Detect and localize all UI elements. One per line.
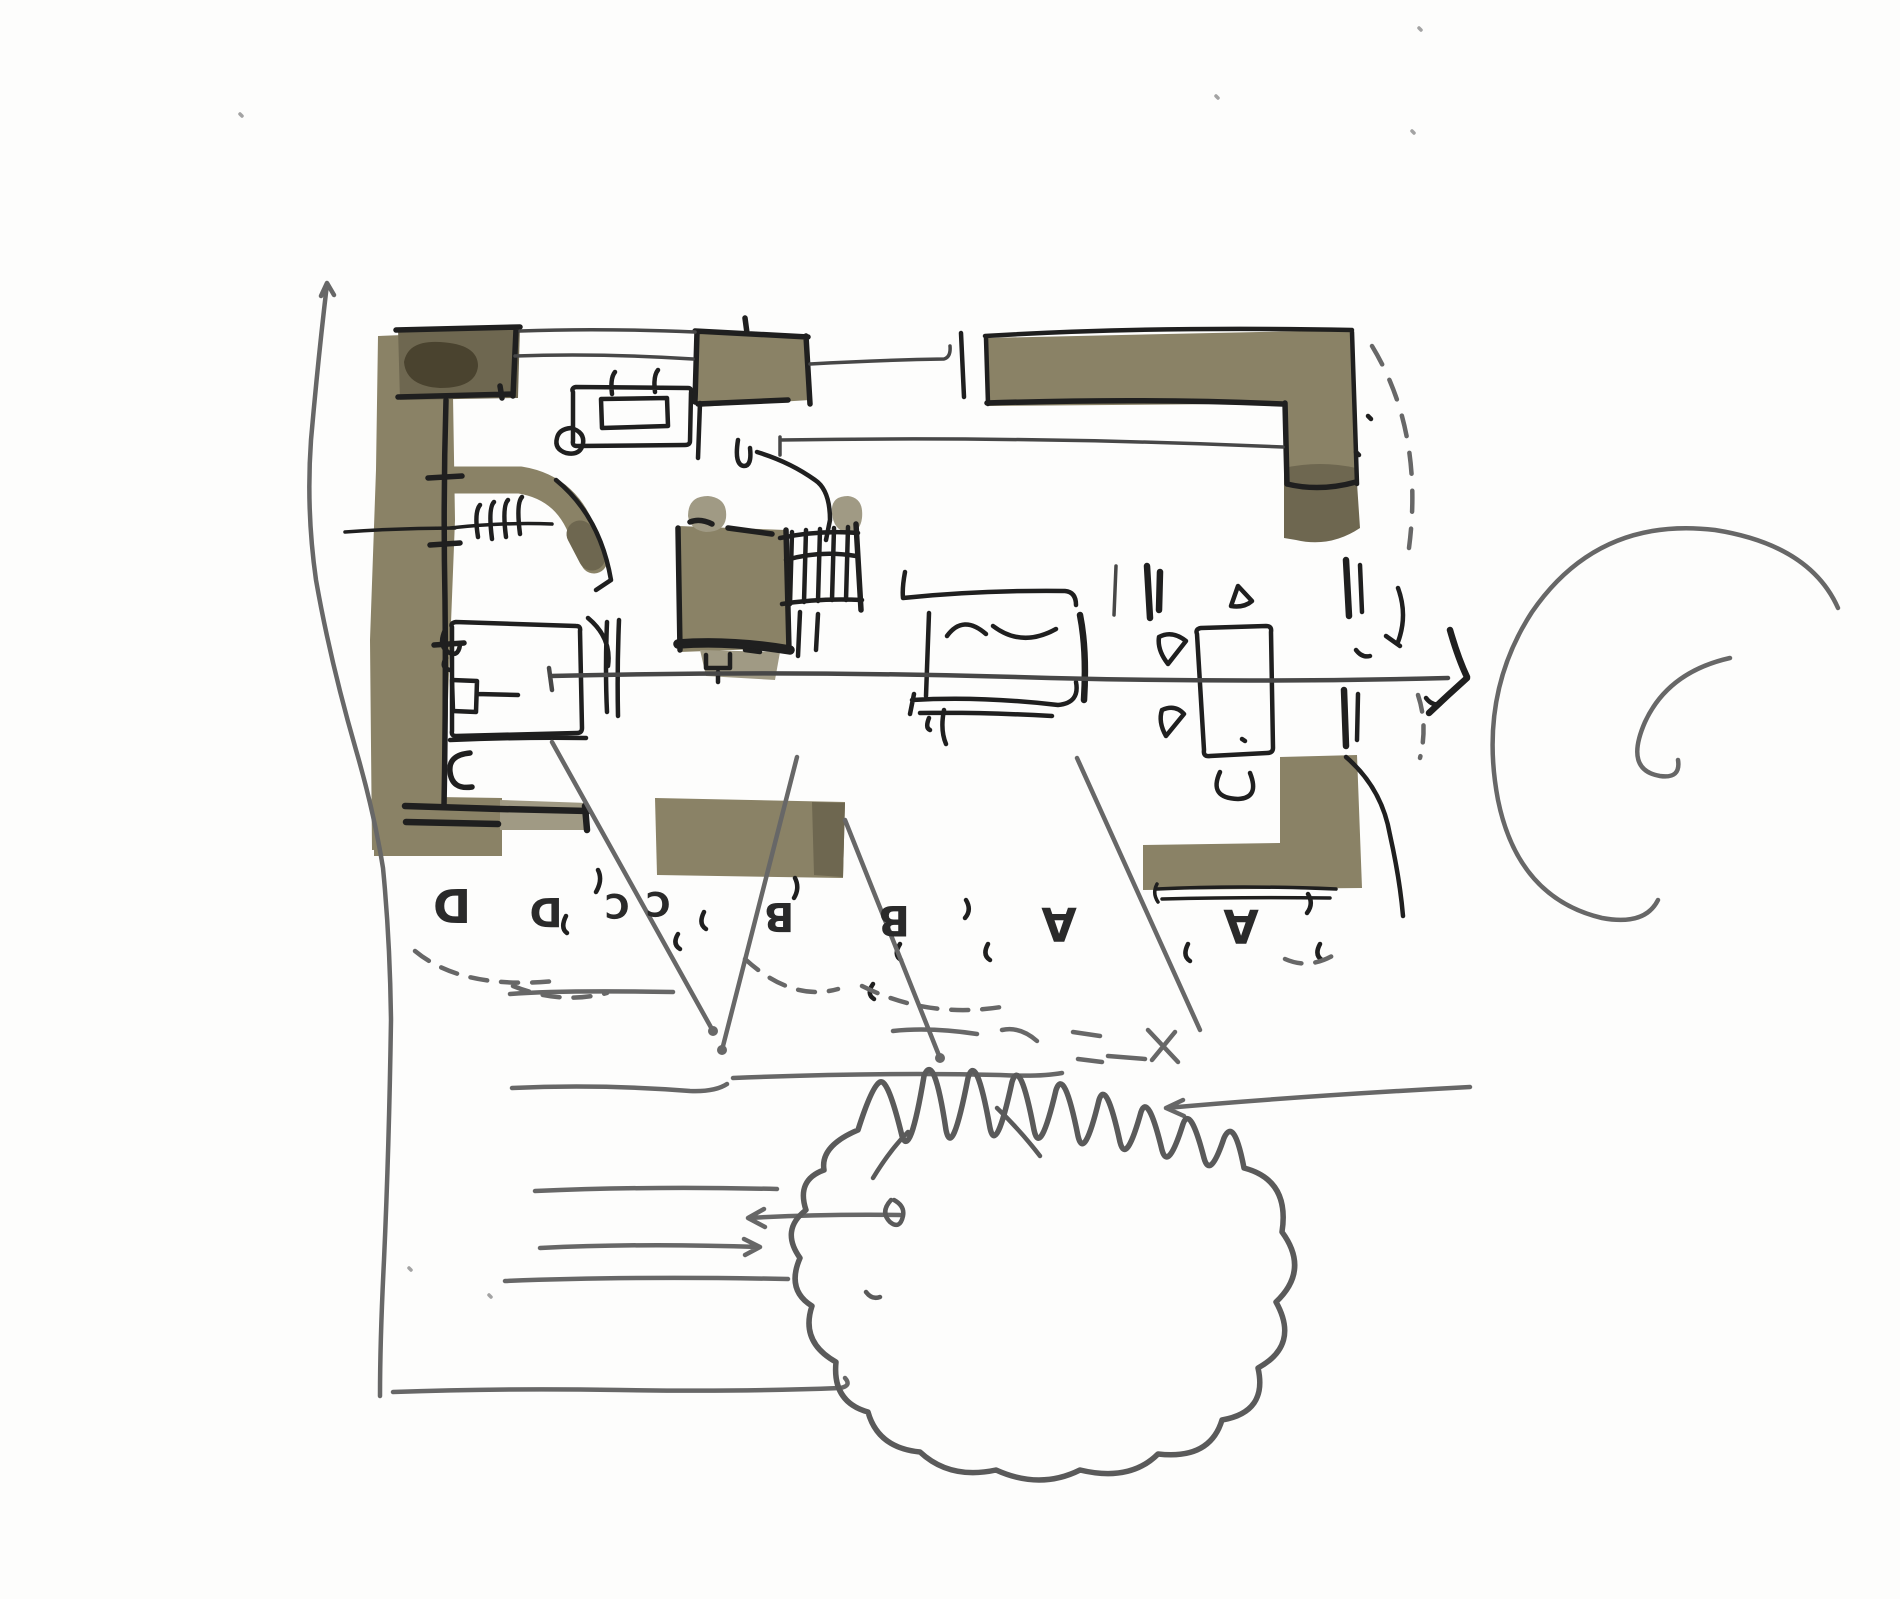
long-right-line (1166, 1087, 1470, 1116)
chair-left-lower (1161, 708, 1184, 736)
top-right-wall (985, 330, 1355, 406)
chair-top (1231, 586, 1252, 606)
curved-partition-tip (580, 534, 592, 557)
bed-pillows (442, 630, 586, 740)
stair-rungs (790, 527, 848, 656)
zone-label-d2: D (529, 888, 562, 934)
right-jamb-marks (1344, 560, 1349, 746)
hatch-lines (505, 991, 1062, 1281)
lower-right-dashed-bit (1418, 695, 1424, 758)
circle-motif (1493, 528, 1838, 920)
bottom-center-wall-dark-end (812, 802, 845, 877)
door-jamb-top (961, 333, 964, 397)
diagonal-tip-dot-2 (717, 1045, 727, 1055)
site-boundary-bottom (393, 1378, 848, 1392)
zone-label-a2: A (1223, 899, 1259, 953)
shower-comb (476, 497, 522, 539)
above-tree-dashes (1002, 1029, 1145, 1062)
left-wall-inner-face (444, 400, 446, 806)
stair-post (856, 524, 861, 610)
floor-plan-sketch: D D C C B B A A (0, 0, 1900, 1599)
tree-group (791, 1070, 1294, 1480)
diagonal-tip-dot-3 (935, 1053, 945, 1063)
hatch-arrow-left (748, 1209, 900, 1227)
sight-arrow-line (549, 668, 1448, 690)
bed-door-jambs (588, 618, 619, 716)
nightstand (450, 753, 472, 787)
door-swing-dashed-arc (1372, 346, 1412, 548)
wash-layer (370, 326, 1362, 890)
sink-circle (556, 428, 583, 454)
diagonal-tip-dot-1 (708, 1026, 718, 1036)
hatch-arrow-right (540, 1239, 760, 1255)
tree-outline (791, 1070, 1294, 1480)
counter-unit (572, 370, 691, 446)
zone-label-c2: C (646, 883, 671, 923)
pencil-layer (240, 28, 1838, 1396)
zone-label-b1: B (764, 893, 795, 939)
top-right-wall-return-blob (1284, 464, 1360, 542)
chair-left-upper (1159, 634, 1186, 664)
inner-face-line (780, 437, 1283, 455)
core-block (678, 526, 788, 652)
zone-label-a1: A (1041, 897, 1077, 951)
zone-label-d1: D (433, 878, 471, 932)
sofa-right-edge (1080, 615, 1085, 700)
dining-table (1197, 626, 1274, 756)
core-block-blob-left (688, 496, 726, 532)
left-wall-foot-tail (500, 800, 588, 830)
sofa-side-faint (1114, 566, 1116, 615)
right-small-marks (1356, 416, 1403, 740)
zone-dashed-arcs (415, 951, 1340, 1010)
sight-arrowhead (1429, 630, 1467, 713)
wall-stub-marks (1147, 566, 1160, 618)
chair-bottom (1217, 772, 1254, 799)
circle-inner-hook (1637, 658, 1730, 776)
top-center-wall (695, 332, 810, 407)
zone-label-b2: B (878, 896, 910, 945)
zone-label-c1: C (605, 885, 630, 925)
top-left-wall-cap-blob (404, 342, 478, 388)
sofa (903, 572, 1077, 744)
sketch-sheet: D D C C B B A A (0, 0, 1900, 1599)
